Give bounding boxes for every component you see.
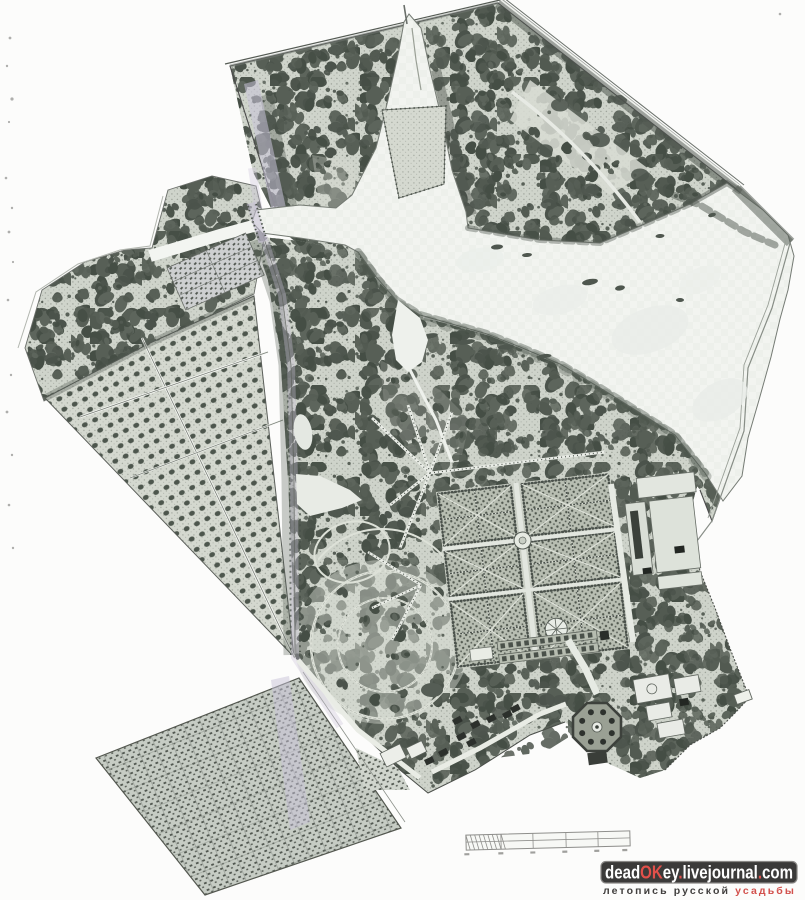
svg-text:deadOKey.livejournal.com: deadOKey.livejournal.com — [605, 863, 793, 883]
svg-text:летопись русской усадьбы: летопись русской усадьбы — [603, 885, 796, 897]
